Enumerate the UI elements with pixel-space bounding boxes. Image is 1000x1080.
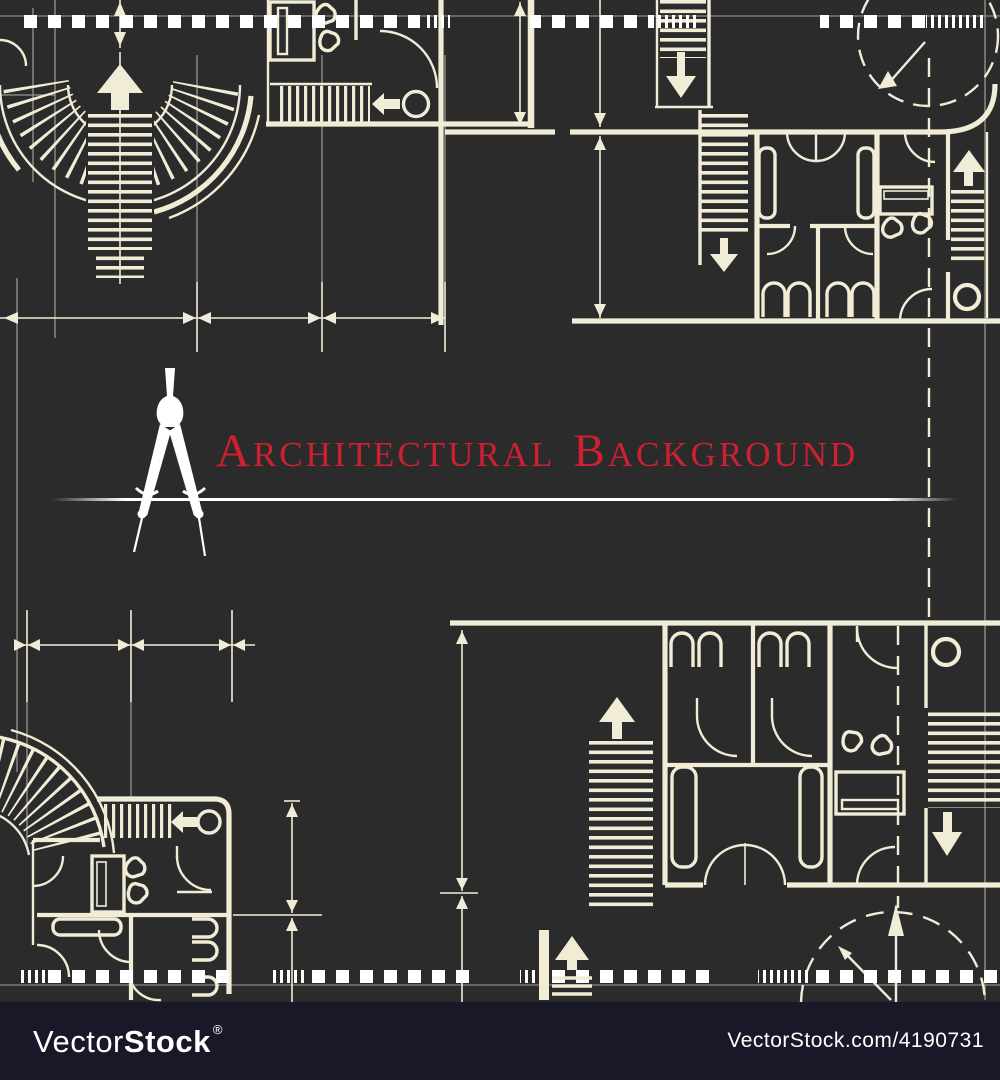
title-word-1: ARCHITECTURAL <box>216 423 555 479</box>
up-arrow-block-bottom-center <box>539 930 592 1000</box>
column-circle <box>933 639 959 665</box>
dimension-chain-middle <box>14 610 255 702</box>
column-circle <box>404 92 429 117</box>
title-word-2: BACKGROUND <box>573 423 858 479</box>
stair-hatch <box>278 86 370 122</box>
table <box>53 919 121 935</box>
door-arc <box>905 132 935 162</box>
column-circle <box>198 811 220 833</box>
brand-bold: Stock <box>124 1024 211 1059</box>
dim-arrow-down-icon <box>114 32 126 46</box>
up-arrow-icon <box>888 904 904 936</box>
door-arc <box>857 628 897 668</box>
watermark-bar: VectorStock® VectorStock.com/4190731 <box>0 1002 1000 1080</box>
chair <box>882 217 904 239</box>
bed <box>759 633 781 667</box>
vectorstock-logo: VectorStock® <box>33 1022 223 1060</box>
scale-bar-bottom <box>18 970 1000 983</box>
bed <box>671 633 693 667</box>
dim-arrow-up-icon <box>114 2 126 16</box>
door-arc <box>33 856 63 886</box>
door-arc <box>0 40 26 66</box>
chair <box>840 728 865 753</box>
column-circle <box>955 285 979 309</box>
door-arc <box>177 856 211 890</box>
bed <box>759 148 775 218</box>
stair-hatch <box>700 113 748 237</box>
up-arrow-icon <box>953 150 985 172</box>
door-arc <box>380 31 437 88</box>
desk <box>270 2 314 60</box>
chair <box>126 881 149 904</box>
door-arc <box>845 226 873 254</box>
left-arrow-icon <box>171 811 197 833</box>
straight-staircase-top-left <box>0 0 154 284</box>
chair <box>318 30 340 52</box>
apartment-plan-top-right <box>445 58 1000 620</box>
radius-arrow-icon <box>878 71 897 89</box>
door-arc <box>767 226 795 254</box>
down-arrow-icon <box>932 832 962 856</box>
dimension-chain-upper <box>0 282 445 352</box>
blueprint-artwork <box>0 0 1000 1002</box>
chair <box>870 733 895 758</box>
image-url-ref: VectorStock.com/4190731 <box>727 1029 984 1053</box>
bed <box>699 633 721 667</box>
stock-image-canvas: ARCHITECTURALBACKGROUND VectorStock® Vec… <box>0 0 1000 1080</box>
chair <box>124 856 147 879</box>
door-arc <box>900 289 932 321</box>
stair-hatch <box>951 188 984 264</box>
bed <box>827 283 849 317</box>
bed <box>787 633 809 667</box>
stair-hatch <box>100 804 173 838</box>
compass-icon <box>134 368 205 556</box>
bed <box>852 283 874 317</box>
bed <box>858 148 874 218</box>
up-arrow-icon <box>599 697 635 722</box>
bed <box>800 767 822 867</box>
dashed-circle-bottom-right <box>801 904 985 1002</box>
stair-hatch <box>928 708 1000 808</box>
registered-mark: ® <box>213 1022 223 1037</box>
apartment-plan-bottom-right <box>440 623 1000 1002</box>
brand-light: Vector <box>33 1024 124 1059</box>
down-arrow-icon <box>666 76 696 98</box>
bed <box>672 767 696 867</box>
down-arrow-icon <box>710 254 738 272</box>
page-title: ARCHITECTURALBACKGROUND <box>216 423 858 479</box>
bed <box>788 283 810 317</box>
bed <box>192 919 217 937</box>
fan-staircase-bottom-left <box>0 730 114 855</box>
title-underline <box>52 498 958 501</box>
stair-hatch <box>589 737 653 909</box>
up-arrow-icon <box>555 936 589 960</box>
door-arc <box>697 716 737 756</box>
door-arc <box>772 716 812 756</box>
left-arrow-icon <box>372 93 400 115</box>
room-block-top-center <box>266 0 534 325</box>
door-arc <box>857 847 895 885</box>
bed <box>763 283 785 317</box>
room-plan-bottom-left <box>33 799 229 1000</box>
scale-bar-top <box>18 15 986 28</box>
bed <box>192 942 217 960</box>
desk <box>836 772 904 814</box>
